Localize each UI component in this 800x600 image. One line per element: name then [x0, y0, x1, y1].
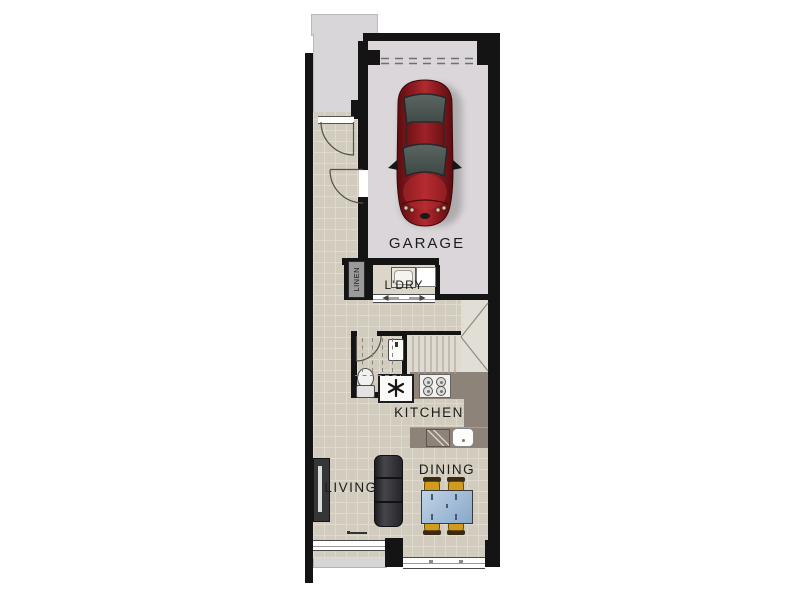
toilet-tank — [356, 385, 375, 398]
window-sill-marker — [348, 532, 367, 534]
kitchen-sink-icon — [452, 428, 474, 447]
kitchen-label: KITCHEN — [379, 405, 479, 420]
wall-hall-garage-upper — [358, 41, 368, 170]
wall-garage-top — [363, 33, 500, 41]
laundry-label: L'DRY — [373, 278, 435, 292]
asterisk-appliance-marker — [378, 374, 414, 403]
wc-basin — [388, 339, 404, 361]
wall-hall-garage-lower — [358, 197, 368, 262]
living-label: LIVING — [301, 480, 401, 495]
garage-label: GARAGE — [377, 235, 477, 252]
cooktop-icon — [419, 374, 451, 398]
wall-right — [488, 33, 500, 567]
floor-plan: LINEN — [0, 0, 800, 600]
linen-label: LINEN — [352, 267, 361, 292]
laundry-sliding-door — [373, 294, 435, 303]
rear-sliding-door — [403, 557, 485, 569]
living-window — [313, 540, 385, 551]
wall-corner-bottom-right — [485, 540, 500, 567]
dining-chair — [447, 477, 465, 491]
asterisk-icon — [380, 376, 412, 401]
dining-chair — [423, 477, 441, 491]
garage-door-jamb-left — [368, 50, 380, 65]
wall-left — [305, 53, 313, 583]
dining-table — [421, 490, 473, 524]
stair-treads-area — [407, 335, 461, 375]
wall-dining-bay-left — [385, 538, 403, 567]
dining-label: DINING — [397, 462, 497, 477]
garage-floor — [368, 41, 488, 294]
stair-winder-area — [461, 300, 488, 372]
linen-closet: LINEN — [348, 261, 365, 298]
garage-door-jamb-right — [477, 41, 488, 65]
dishwasher-icon — [426, 429, 450, 447]
entry-door-threshold — [318, 116, 354, 124]
